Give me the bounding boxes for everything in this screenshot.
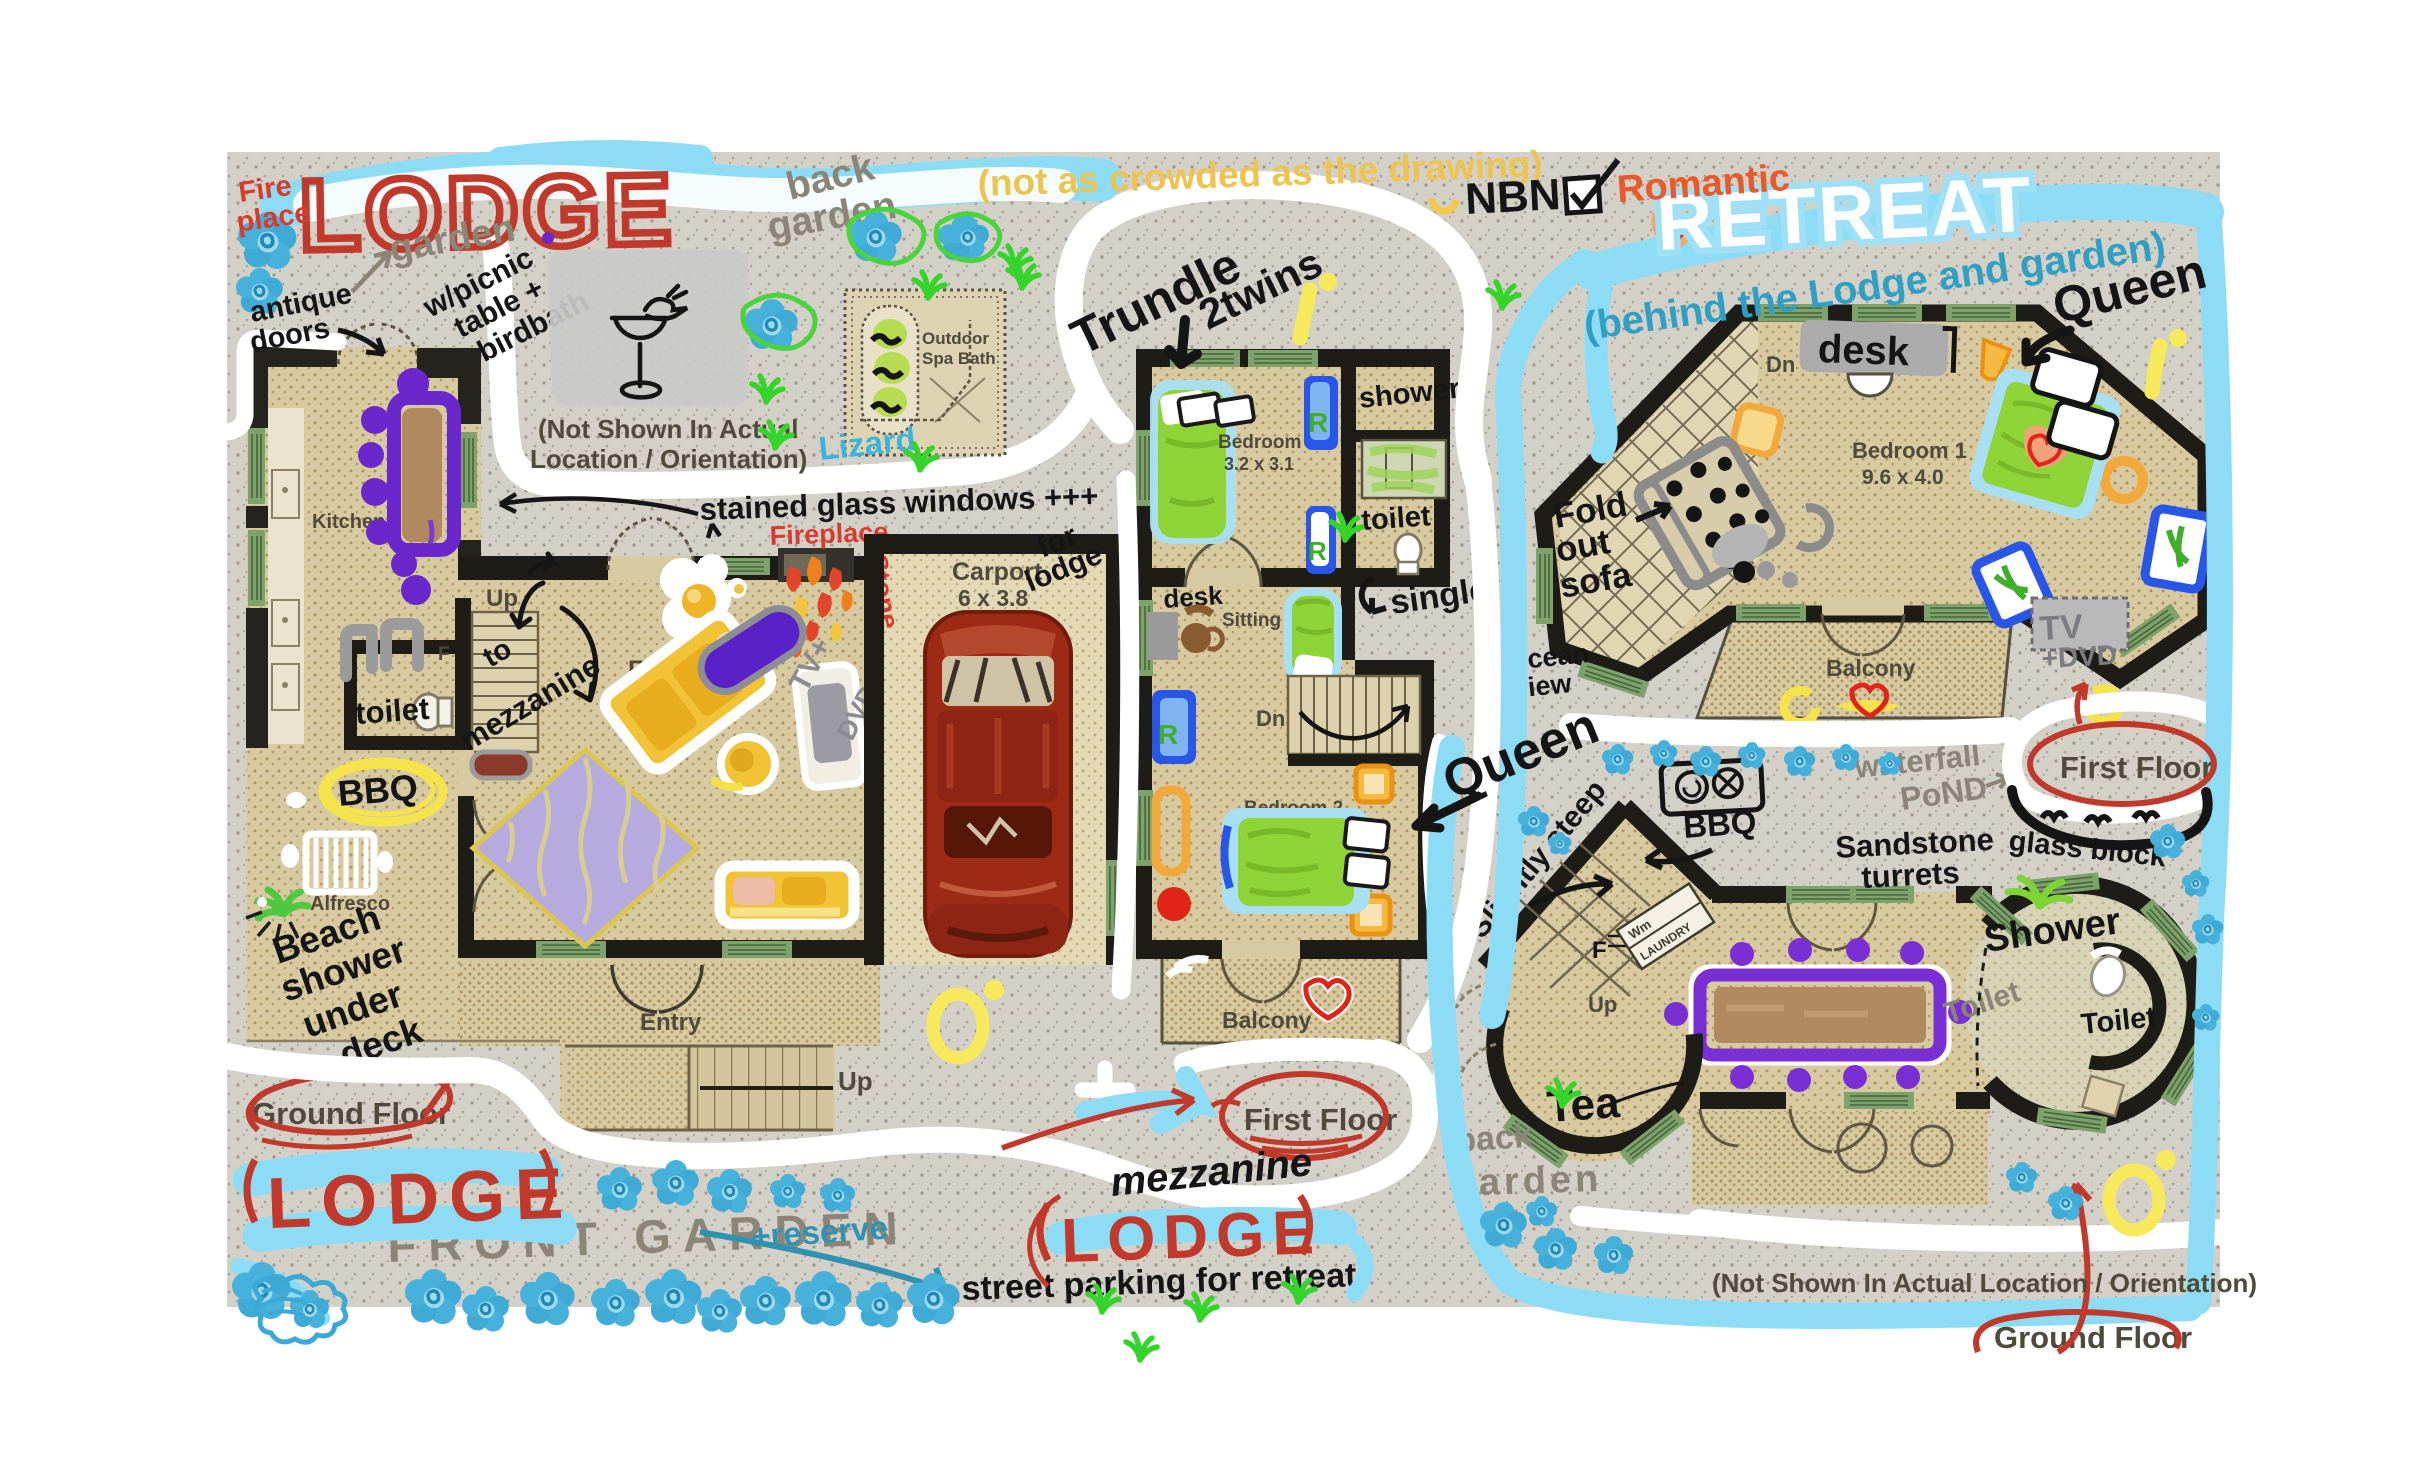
svg-text:toilet: toilet — [354, 691, 430, 731]
svg-text:Location / Orientation): Location / Orientation) — [530, 444, 807, 474]
svg-text:Dn: Dn — [1256, 706, 1285, 731]
svg-text:9.6 x 4.0: 9.6 x 4.0 — [1862, 466, 1944, 489]
svg-text:First Floor: First Floor — [1244, 1102, 1397, 1137]
svg-text:Entry: Entry — [640, 1009, 702, 1036]
svg-text:Up: Up — [486, 585, 518, 612]
svg-text:Bedroom 1: Bedroom 1 — [1852, 438, 1967, 463]
svg-text:Balcony: Balcony — [1826, 655, 1916, 681]
svg-text:desk: desk — [1817, 327, 1910, 374]
svg-text:Up: Up — [838, 1066, 873, 1096]
svg-text:turrets: turrets — [1861, 855, 1961, 895]
svg-text:3.2 x 3.1: 3.2 x 3.1 — [1224, 454, 1294, 474]
svg-text:BBQ: BBQ — [1682, 803, 1758, 845]
svg-text:+DVD: +DVD — [2041, 639, 2118, 674]
svg-text:R: R — [1308, 536, 1327, 566]
svg-text:LODGE: LODGE — [1060, 1198, 1323, 1276]
svg-text:(Not Shown In Actual Location: (Not Shown In Actual Location / Orientat… — [1712, 1268, 2257, 1298]
svg-text:Balcony: Balcony — [1222, 1007, 1312, 1033]
svg-text:6 x 3.8: 6 x 3.8 — [958, 585, 1029, 611]
svg-text:F: F — [1592, 937, 1607, 964]
svg-text:Outdoor: Outdoor — [922, 329, 989, 348]
svg-text:Up: Up — [1588, 992, 1617, 1017]
svg-text:First Floor: First Floor — [2060, 750, 2213, 785]
svg-text:toilet: toilet — [1360, 500, 1432, 537]
svg-text:Ground Floor: Ground Floor — [1994, 1320, 2192, 1355]
svg-text:LODGE: LODGE — [266, 1153, 575, 1244]
svg-text:F: F — [438, 644, 450, 665]
svg-text:Spa Bath: Spa Bath — [922, 349, 996, 368]
svg-text:Dn: Dn — [1766, 352, 1795, 377]
svg-text:R: R — [1158, 719, 1178, 750]
svg-text:NBN: NBN — [1464, 170, 1562, 224]
svg-text:BBQ: BBQ — [336, 766, 419, 814]
svg-text:R: R — [1308, 407, 1328, 438]
svg-text:Bedroom 3: Bedroom 3 — [1218, 432, 1317, 453]
